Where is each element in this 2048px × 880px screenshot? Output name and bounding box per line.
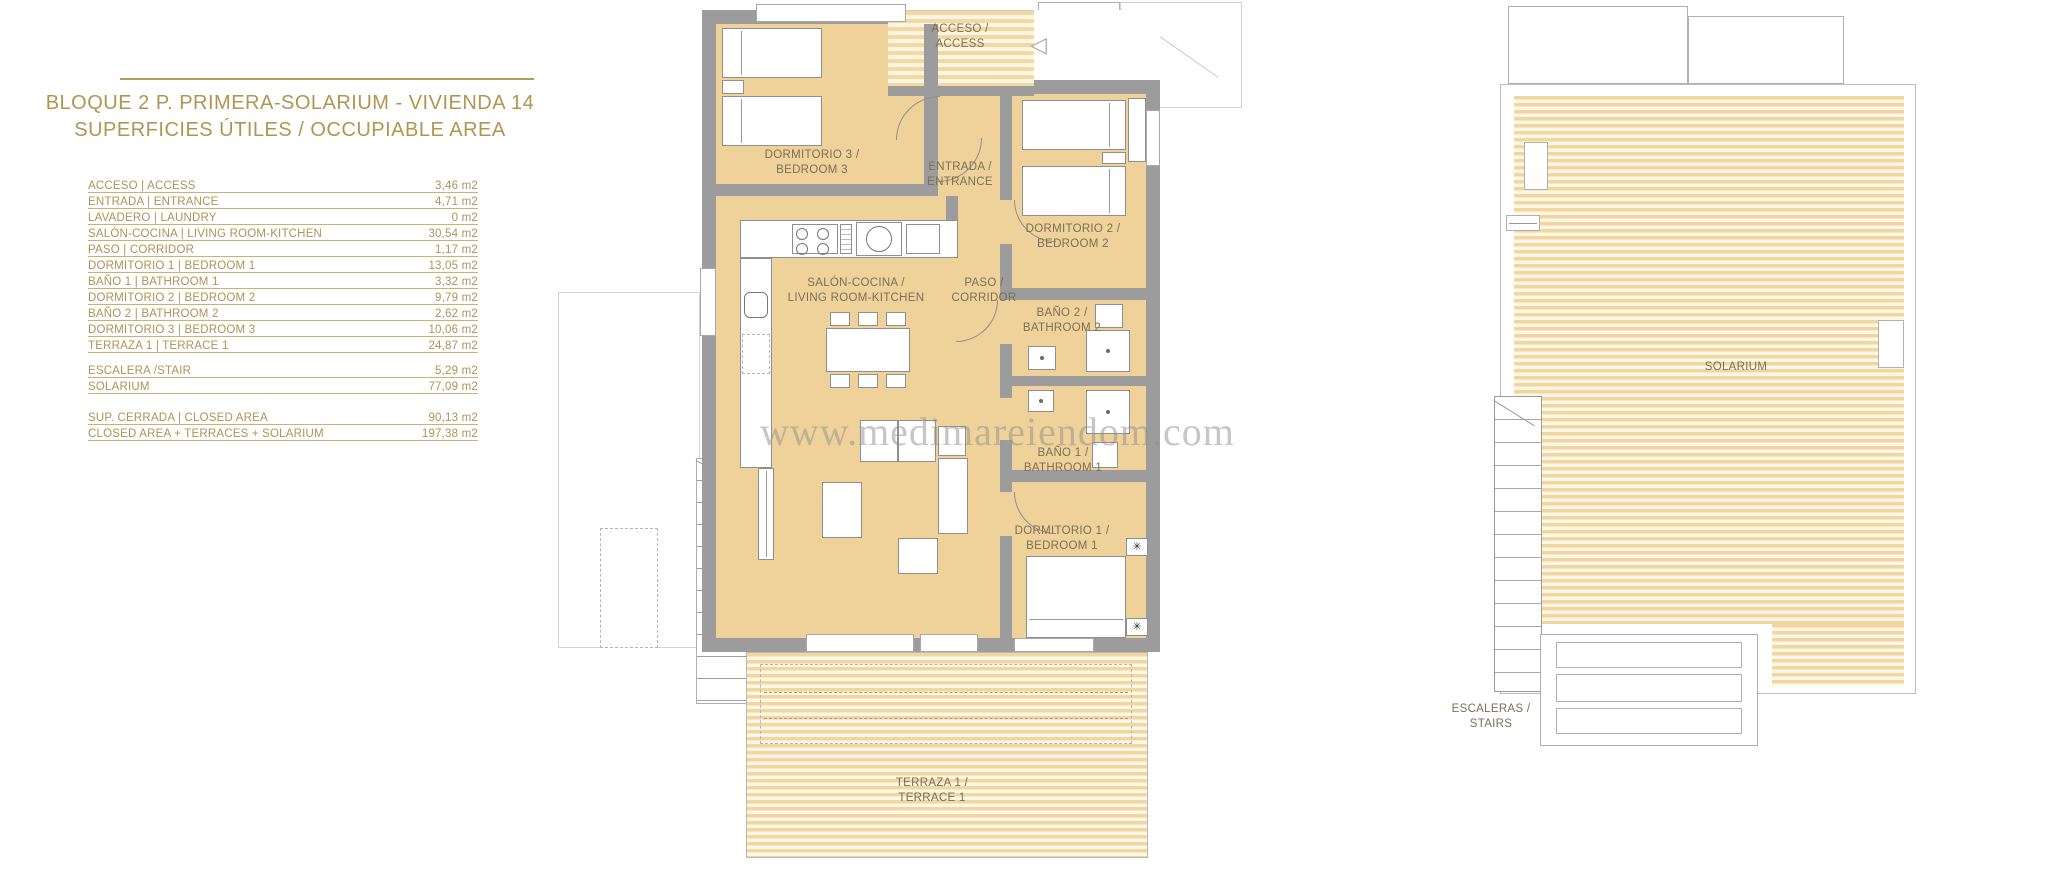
table-row: DORMITORIO 3 | BEDROOM 3 10,06 m2 xyxy=(88,321,478,337)
label-entrada: ENTRADA / ENTRANCE xyxy=(905,160,1015,190)
pergola-dashed xyxy=(760,664,1132,744)
nightstand-lamp-icon: ✳ xyxy=(1126,618,1148,636)
solarium-deck-extension xyxy=(1772,624,1904,686)
total-area: 197,38 m2 xyxy=(422,428,478,440)
bed xyxy=(722,28,822,78)
chimney xyxy=(1878,320,1904,368)
label-solarium: SOLARIUM xyxy=(1656,360,1816,375)
bedroom3-window xyxy=(756,4,906,22)
room-area: 3,46 m2 xyxy=(435,180,478,192)
pergola-line xyxy=(764,692,1128,693)
table-row: TERRAZA 1 | TERRACE 1 24,87 m2 xyxy=(88,337,478,353)
laundry-sink-icon xyxy=(744,292,768,318)
table-row: BAÑO 2 | BATHROOM 2 2,62 m2 xyxy=(88,305,478,321)
room-name: ESCALERA /STAIR xyxy=(88,365,191,377)
coffee-table xyxy=(822,482,862,538)
page-subtitle: SUPERFICIES ÚTILES / OCCUPIABLE AREA xyxy=(40,117,540,144)
washbasin xyxy=(1028,346,1056,370)
room-name: PASO | CORRIDOR xyxy=(88,244,194,256)
table-row: PASO | CORRIDOR 1,17 m2 xyxy=(88,241,478,257)
room-area: 5,29 m2 xyxy=(435,365,478,377)
table-row: SALÓN-COCINA | LIVING ROOM-KITCHEN 30,54… xyxy=(88,225,478,241)
chair xyxy=(830,312,850,326)
room-area: 30,54 m2 xyxy=(428,228,478,240)
table-row: ENTRADA | ENTRANCE 4,71 m2 xyxy=(88,193,478,209)
areas-table-main: ACCESO | ACCESS 3,46 m2 ENTRADA | ENTRAN… xyxy=(88,177,478,353)
room-name: SOLARIUM xyxy=(88,381,150,393)
room-name: ENTRADA | ENTRANCE xyxy=(88,196,219,208)
label-salon-cocina: SALÓN-COCINA / LIVING ROOM-KITCHEN xyxy=(766,276,946,306)
nightstand xyxy=(722,80,744,94)
nightstand-lamp-icon: ✳ xyxy=(1126,538,1148,556)
label-bano2: BAÑO 2 / BATHROOM 2 xyxy=(1008,306,1116,336)
room-area: 1,17 m2 xyxy=(435,244,478,256)
room-area: 0 m2 xyxy=(452,212,478,224)
bed xyxy=(1022,166,1126,216)
solarium-stairs xyxy=(1494,396,1542,692)
table-row: DORMITORIO 1 | BEDROOM 1 13,05 m2 xyxy=(88,257,478,273)
total-area: 90,13 m2 xyxy=(428,412,478,424)
living-terrace-window-1 xyxy=(806,634,914,652)
title-block: BLOQUE 2 P. PRIMERA-SOLARIUM - VIVIENDA … xyxy=(40,90,540,144)
room-area: 2,62 m2 xyxy=(435,308,478,320)
wall-corridor-right-3 xyxy=(1000,344,1012,398)
roof-box-2 xyxy=(1688,16,1844,84)
wardrobe xyxy=(1128,98,1146,162)
total-name: SUP. CERRADA | CLOSED AREA xyxy=(88,412,268,424)
bed xyxy=(722,96,822,146)
bedroom1-window xyxy=(1014,638,1094,652)
sink-round-icon xyxy=(866,226,892,252)
chair xyxy=(858,312,878,326)
nightstand xyxy=(1102,152,1126,164)
page-title: BLOQUE 2 P. PRIMERA-SOLARIUM - VIVIENDA … xyxy=(40,90,540,117)
room-name: BAÑO 2 | BATHROOM 2 xyxy=(88,308,219,320)
title-rule xyxy=(120,78,534,80)
wall-bath2-bath1 xyxy=(1012,376,1146,386)
room-area: 10,06 m2 xyxy=(428,324,478,336)
room-name: SALÓN-COCINA | LIVING ROOM-KITCHEN xyxy=(88,228,322,240)
bed xyxy=(1022,100,1126,150)
total-name: CLOSED AREA + TERRACES + SOLARIUM xyxy=(88,428,324,440)
oven-icon xyxy=(840,224,852,254)
bedroom2-window xyxy=(1146,110,1160,166)
room-area: 9,79 m2 xyxy=(435,292,478,304)
room-area: 24,87 m2 xyxy=(428,340,478,352)
areas-table-summary: SUP. CERRADA | CLOSED AREA 90,13 m2 CLOS… xyxy=(88,409,478,441)
living-terrace-window-2 xyxy=(920,634,978,652)
table-row: BAÑO 1 | BATHROOM 1 3,32 m2 xyxy=(88,273,478,289)
stove-icon xyxy=(792,224,838,254)
armchair xyxy=(898,538,938,574)
room-name: LAVADERO | LAUNDRY xyxy=(88,212,217,224)
table-row: LAVADERO | LAUNDRY 0 m2 xyxy=(88,209,478,225)
room-name: ACCESO | ACCESS xyxy=(88,180,196,192)
areas-table-secondary: ESCALERA /STAIR 5,29 m2 SOLARIUM 77,09 m… xyxy=(88,362,478,394)
double-bed xyxy=(1026,556,1126,638)
chair xyxy=(858,374,878,388)
room-area: 3,32 m2 xyxy=(435,276,478,288)
table-row: CLOSED AREA + TERRACES + SOLARIUM 197,38… xyxy=(88,425,478,441)
areas-table: ACCESO | ACCESS 3,46 m2 ENTRADA | ENTRAN… xyxy=(88,177,478,441)
outside-top-right xyxy=(1034,10,1160,80)
label-terraza: TERRAZA 1 / TERRACE 1 xyxy=(862,776,1002,806)
neighbour-terrace-dashed xyxy=(600,528,658,648)
table-row: SOLARIUM 77,09 m2 xyxy=(88,378,478,394)
chair xyxy=(830,374,850,388)
room-name: TERRAZA 1 | TERRACE 1 xyxy=(88,340,229,352)
room-name: DORMITORIO 1 | BEDROOM 1 xyxy=(88,260,255,272)
label-acceso: ACCESO / ACCESS xyxy=(900,22,1020,52)
dining-table xyxy=(826,328,910,372)
chair xyxy=(886,312,906,326)
pergola-line xyxy=(764,718,1128,719)
roof-vent xyxy=(1506,215,1540,231)
label-dormitorio1: DORMITORIO 1 / BEDROOM 1 xyxy=(1000,524,1124,554)
chair xyxy=(886,374,906,388)
label-dormitorio3: DORMITORIO 3 / BEDROOM 3 xyxy=(712,148,912,178)
room-name: DORMITORIO 2 | BEDROOM 2 xyxy=(88,292,255,304)
table-row: ESCALERA /STAIR 5,29 m2 xyxy=(88,362,478,378)
label-dormitorio2: DORMITORIO 2 / BEDROOM 2 xyxy=(1008,222,1138,252)
table-row: DORMITORIO 2 | BEDROOM 2 9,79 m2 xyxy=(88,289,478,305)
table-row: ACCESO | ACCESS 3,46 m2 xyxy=(88,177,478,193)
roof-box-1 xyxy=(1508,6,1688,84)
floorplan-sheet: BLOQUE 2 P. PRIMERA-SOLARIUM - VIVIENDA … xyxy=(0,0,2048,880)
tv-unit xyxy=(758,468,774,560)
room-area: 77,09 m2 xyxy=(428,381,478,393)
appliance-dashed xyxy=(742,334,770,374)
room-name: BAÑO 1 | BATHROOM 1 xyxy=(88,276,219,288)
living-left-window xyxy=(700,268,716,336)
watermark: www.medimareiendom.com xyxy=(760,408,1235,455)
label-escaleras: ESCALERAS / STAIRS xyxy=(1431,702,1551,732)
room-area: 4,71 m2 xyxy=(435,196,478,208)
room-area: 13,05 m2 xyxy=(428,260,478,272)
sofa-chaise xyxy=(938,458,968,534)
access-wall xyxy=(888,86,1034,96)
planter xyxy=(1556,642,1742,668)
roof-hatch xyxy=(1524,142,1548,190)
access-direction-icon: ◁ xyxy=(1030,32,1047,58)
shower xyxy=(1086,330,1130,372)
kitchen-cabinet xyxy=(906,224,940,254)
table-row: SUP. CERRADA | CLOSED AREA 90,13 m2 xyxy=(88,409,478,425)
room-name: DORMITORIO 3 | BEDROOM 3 xyxy=(88,324,255,336)
wall-dorm2-bath2 xyxy=(1012,288,1146,300)
planter xyxy=(1556,708,1742,734)
right-wing-top-wall xyxy=(1034,80,1160,94)
planter xyxy=(1556,674,1742,702)
label-paso: PASO / CORRIDOR xyxy=(948,276,1020,306)
